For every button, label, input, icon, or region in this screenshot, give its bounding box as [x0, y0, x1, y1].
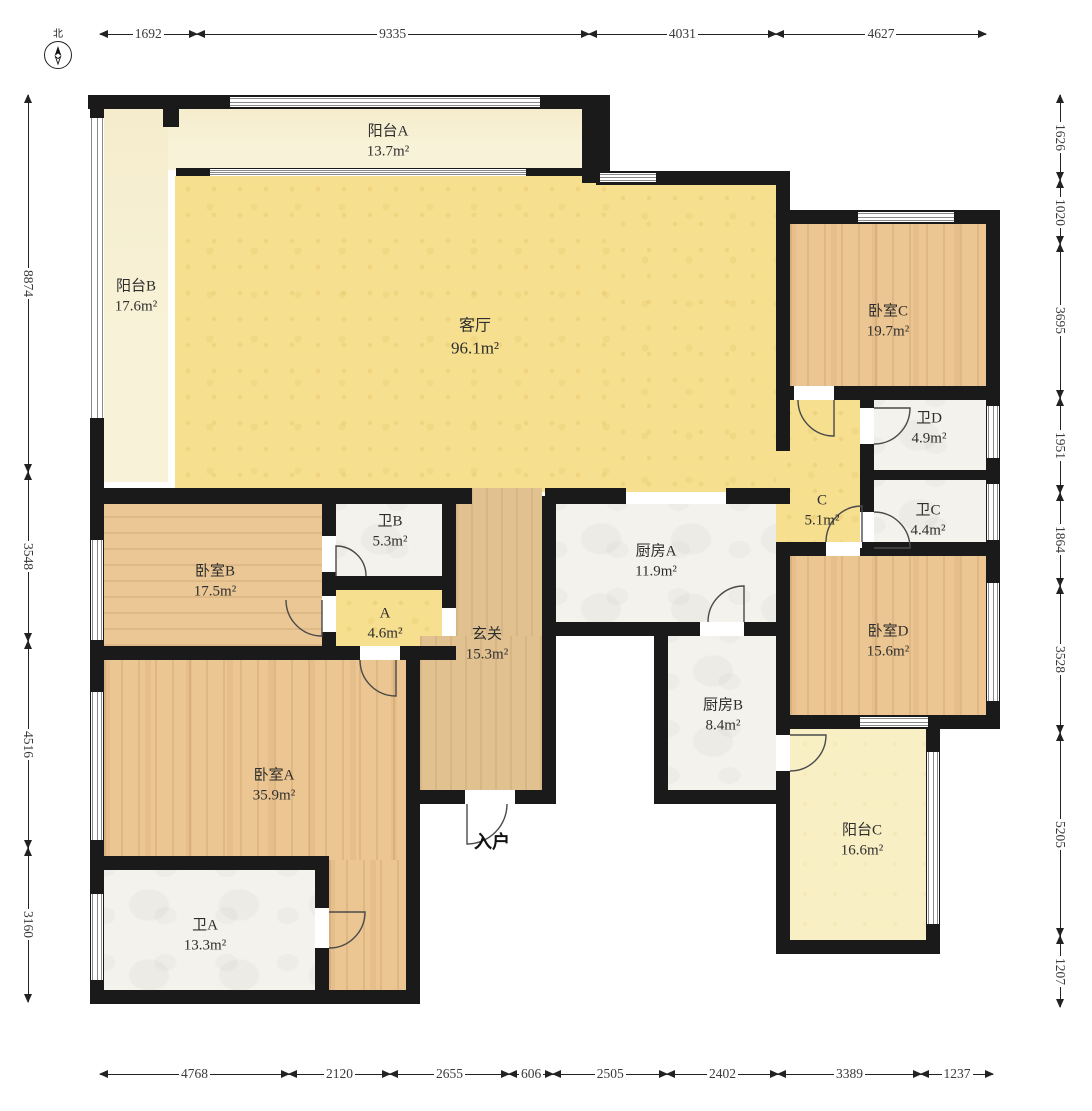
room-label-kitchen_b: 厨房B8.4m²: [703, 697, 743, 736]
room-name: 厨房B: [703, 698, 743, 714]
room-name: 客厅: [459, 318, 491, 335]
dimension-value: 4031: [667, 26, 698, 42]
window: [987, 406, 999, 458]
room-name: 卫A: [192, 918, 218, 934]
room-label-kitchen_a: 厨房A11.9m²: [635, 543, 677, 582]
dimension-value: 1626: [1052, 122, 1068, 153]
room-name: 卧室B: [195, 564, 235, 580]
room-label-bedroom_c: 卧室C19.7m²: [867, 303, 909, 342]
room-label-bedroom_d: 卧室D15.6m²: [867, 623, 909, 662]
wall-segment: [90, 990, 420, 1004]
dimension-value: 3160: [20, 909, 36, 940]
dimension-value: 3695: [1052, 305, 1068, 336]
wall-segment: [90, 646, 336, 660]
window: [230, 97, 540, 107]
wall-segment: [776, 556, 790, 735]
window: [860, 717, 928, 727]
wall-segment: [776, 386, 794, 400]
wall-segment: [860, 444, 874, 512]
dimension-value: 1237: [942, 1066, 973, 1082]
wall-segment: [862, 542, 1000, 556]
room-label-corridor_c: C5.1m²: [805, 492, 840, 531]
room-name: 卧室A: [254, 768, 295, 784]
floor-plan-canvas: 北 1692933540314627 476821202655606250524…: [0, 0, 1092, 1111]
room-label-corridor_a: A4.6m²: [368, 605, 403, 644]
dimension-value: 3528: [1052, 644, 1068, 675]
dimension-value: 1864: [1052, 524, 1068, 555]
room-name: 玄关: [472, 627, 502, 643]
entrance-label: 入户: [474, 828, 510, 854]
room-label-entry_hall: 玄关15.3m²: [466, 626, 508, 665]
wall-segment: [163, 109, 179, 127]
room-name: 卧室D: [868, 624, 909, 640]
wall-segment: [776, 542, 826, 556]
room-area: 15.3m²: [466, 645, 508, 665]
wall-segment: [90, 488, 472, 504]
room-name: A: [380, 606, 391, 622]
dimension-value: 2402: [707, 1066, 738, 1082]
wall-segment: [322, 572, 336, 596]
window: [927, 752, 939, 924]
window: [600, 173, 656, 182]
dimension-value: 3389: [834, 1066, 865, 1082]
dimension-value: 8874: [20, 268, 36, 299]
window: [987, 484, 999, 540]
room-area: 96.1m²: [451, 337, 499, 359]
room-label-bath_b: 卫B5.3m²: [373, 513, 408, 552]
dimension-value: 4768: [179, 1066, 210, 1082]
room-name: 阳台A: [368, 124, 409, 140]
wall-segment: [860, 400, 874, 408]
room-label-bath_d: 卫D4.9m²: [912, 410, 947, 449]
room-label-balcony_b: 阳台B17.6m²: [115, 278, 157, 317]
room-name: 卫C: [915, 503, 940, 519]
room-area: 17.6m²: [115, 297, 157, 317]
room-area: 8.4m²: [703, 716, 743, 736]
room-label-bath_a: 卫A13.3m²: [184, 917, 226, 956]
room-area: 13.7m²: [367, 142, 409, 162]
room-label-bath_c: 卫C4.4m²: [911, 502, 946, 541]
dimension-value: 4627: [865, 26, 896, 42]
room-area: 4.4m²: [911, 521, 946, 541]
room-living_room: [610, 185, 776, 492]
room-name: C: [817, 493, 827, 509]
wall-segment: [874, 470, 986, 480]
dimension-value: 2655: [434, 1066, 465, 1082]
wall-segment: [322, 488, 336, 536]
room-area: 5.3m²: [373, 532, 408, 552]
room-label-balcony_c: 阳台C16.6m²: [841, 822, 883, 861]
window: [90, 118, 104, 418]
window: [91, 540, 103, 640]
room-label-bedroom_b: 卧室B17.5m²: [194, 563, 236, 602]
wall-segment: [515, 790, 556, 804]
wall-segment: [986, 210, 1000, 400]
room-area: 15.6m²: [867, 642, 909, 662]
wall-segment: [315, 856, 329, 908]
dimension-value: 2505: [595, 1066, 626, 1082]
wall-segment: [726, 488, 790, 504]
room-bedroom_a: [329, 860, 406, 990]
dimension-value: 5205: [1052, 819, 1068, 850]
room-area: 35.9m²: [253, 786, 295, 806]
wall-segment: [556, 488, 626, 504]
plan-area: 阳台A13.7m²阳台B17.6m²客厅96.1m²卧室C19.7m²卫D4.9…: [0, 0, 1092, 1111]
room-name: 阳台C: [842, 823, 882, 839]
room-name: 卧室C: [868, 304, 908, 320]
room-name: 卫B: [377, 514, 402, 530]
wall-segment: [406, 646, 420, 1004]
dimension-value: 1692: [133, 26, 164, 42]
window: [858, 212, 954, 222]
wall-segment: [744, 622, 790, 636]
room-entry_hall: [456, 488, 542, 636]
dimension-value: 1207: [1052, 956, 1068, 987]
wall-segment: [834, 386, 1000, 400]
room-area: 5.1m²: [805, 511, 840, 531]
wall-segment: [654, 790, 790, 804]
room-bedroom_a: [104, 660, 406, 860]
room-label-bedroom_a: 卧室A35.9m²: [253, 767, 295, 806]
wall-segment: [542, 622, 700, 636]
room-area: 4.6m²: [368, 624, 403, 644]
window: [987, 583, 999, 701]
wall-segment: [336, 646, 360, 660]
wall-segment: [542, 636, 556, 804]
wall-segment: [90, 856, 329, 870]
dimension-value: 4516: [20, 729, 36, 760]
dimension-value: 2120: [324, 1066, 355, 1082]
dimension-value: 1951: [1052, 430, 1068, 461]
dimension-value: 3548: [20, 541, 36, 572]
room-area: 19.7m²: [867, 322, 909, 342]
room-name: 厨房A: [636, 544, 677, 560]
window: [91, 692, 103, 840]
wall-segment: [542, 496, 556, 636]
room-area: 17.5m²: [194, 582, 236, 602]
wall-segment: [776, 940, 940, 954]
room-label-balcony_a: 阳台A13.7m²: [367, 123, 409, 162]
room-area: 4.9m²: [912, 429, 947, 449]
window: [210, 169, 526, 176]
room-area: 16.6m²: [841, 841, 883, 861]
dimension-value: 9335: [377, 26, 408, 42]
wall-segment: [336, 576, 456, 590]
room-name: 阳台B: [116, 279, 156, 295]
wall-segment: [654, 622, 668, 804]
wall-segment: [442, 488, 456, 608]
room-area: 13.3m²: [184, 936, 226, 956]
window: [91, 894, 103, 980]
wall-segment: [400, 646, 456, 660]
room-name: 卫D: [916, 411, 942, 427]
dimension-value: 606: [519, 1066, 543, 1082]
room-area: 11.9m²: [635, 562, 677, 582]
dimension-value: 1020: [1052, 197, 1068, 228]
room-label-living_room: 客厅96.1m²: [451, 317, 499, 360]
